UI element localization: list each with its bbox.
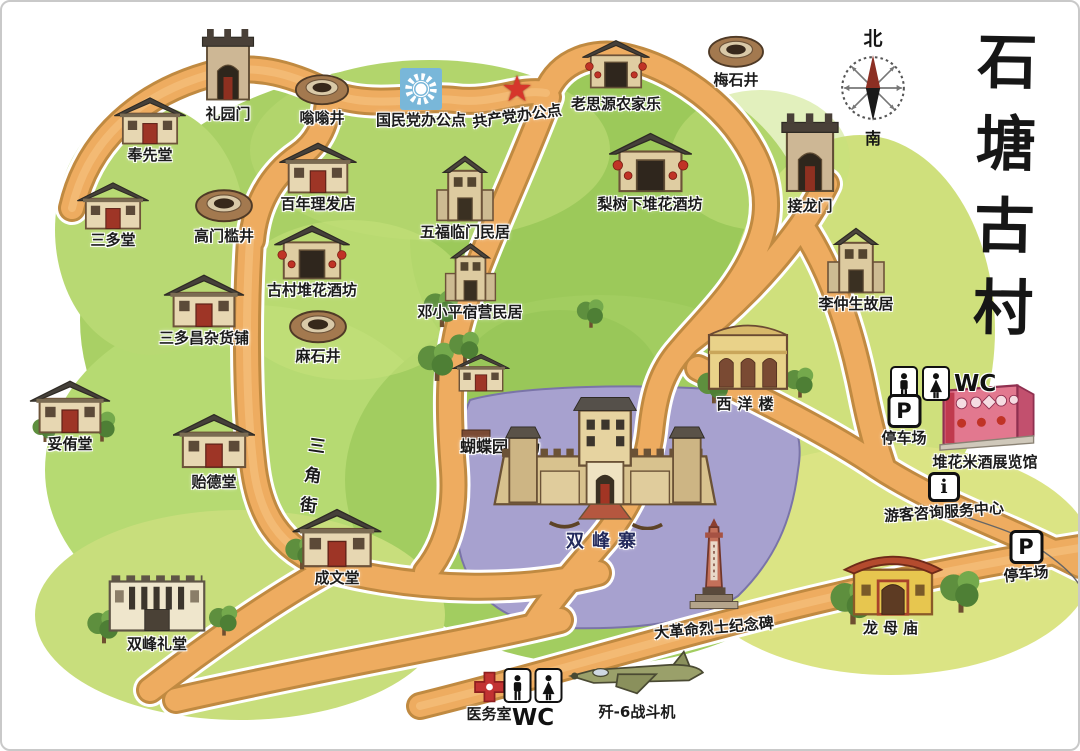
- temple-icon: [837, 540, 949, 618]
- landmark-label: 老思源农家乐: [571, 96, 661, 113]
- hall-icon: [27, 378, 113, 434]
- grocery-icon: [161, 272, 247, 328]
- well-icon: [193, 184, 255, 226]
- landmark-label: 奉先堂: [127, 147, 172, 164]
- landmark-label: 成文堂: [314, 570, 359, 587]
- gate-icon: [777, 110, 843, 196]
- landmark-label: 嗡嗡井: [299, 110, 344, 127]
- landmark-mashi-well[interactable]: 麻石井: [287, 306, 349, 365]
- landmark-martyrs-monument[interactable]: 大革命烈士纪念碑: [654, 516, 774, 637]
- landmark-label: 麻石井: [295, 348, 340, 365]
- well-icon: [293, 70, 351, 108]
- compass-north-label: 北: [863, 24, 882, 51]
- landmark-j6-fighter[interactable]: 歼-6战斗机: [562, 650, 712, 721]
- compass-rose-icon: [836, 51, 910, 125]
- landmark-label: 妥侑堂: [47, 436, 92, 453]
- info-icon: i: [928, 472, 960, 502]
- landmark-label: 双峰礼堂: [127, 636, 187, 653]
- landmark-label: 三多堂: [90, 232, 135, 249]
- fort-icon: [489, 392, 721, 530]
- landmark-label: 国民党办公点: [376, 112, 466, 129]
- parking-icon: P: [1009, 530, 1043, 564]
- kmt-sun-icon: [400, 68, 442, 110]
- compass: 北 南: [836, 24, 910, 149]
- landmark-label: 梨树下堆花酒坊: [597, 196, 702, 213]
- landmark-longmu-temple[interactable]: 龙母庙: [837, 540, 949, 637]
- red-star-icon: ★: [501, 74, 533, 106]
- parking-bottom-right[interactable]: P 停车场: [1003, 530, 1048, 583]
- hall-icon: [173, 408, 255, 472]
- landmark-laosiyuan-farmhouse[interactable]: 老思源农家乐: [571, 32, 661, 113]
- landmark-shuangfeng-auditorium[interactable]: 双峰礼堂: [97, 564, 217, 653]
- landmark-label: 古村堆花酒坊: [267, 282, 357, 299]
- landmark-label: 停车场: [1003, 564, 1049, 585]
- landmark-label: 接龙门: [787, 198, 832, 215]
- wc-label: WC: [954, 371, 996, 397]
- hall-icon: [113, 95, 187, 145]
- landmark-century-barbershop[interactable]: 百年理发店: [279, 140, 357, 213]
- well-icon: [287, 306, 349, 346]
- landmark-label: 贻德堂: [191, 474, 236, 491]
- landmark-lishuxia-wine-workshop[interactable]: 梨树下堆花酒坊: [597, 128, 702, 213]
- landmark-meishi-well[interactable]: 梅石井: [706, 32, 766, 89]
- landmark-label: 高门槛井: [194, 228, 254, 245]
- landmark-label: 礼园门: [205, 106, 250, 123]
- wc-facility-bottom[interactable]: WC: [504, 668, 563, 731]
- auditorium-icon: [97, 564, 217, 634]
- fighter-jet-icon: [562, 650, 712, 702]
- parking-icon: P: [887, 394, 921, 428]
- landmark-jielong-gate[interactable]: 接龙门: [777, 110, 843, 215]
- wc-label: WC: [512, 705, 554, 731]
- western-building-icon: [699, 316, 797, 394]
- wine-workshop-icon: [272, 222, 352, 280]
- landmark-label: 西洋楼: [716, 396, 779, 413]
- landmark-gaomenkan-well[interactable]: 高门槛井: [193, 184, 255, 245]
- residence-icon: [429, 150, 501, 222]
- landmark-label: 双峰寨: [566, 532, 644, 552]
- shop-icon: [279, 140, 357, 194]
- man-icon: [504, 668, 532, 703]
- landmark-sanduo-hall[interactable]: 三多堂: [77, 180, 149, 249]
- woman-icon: [535, 668, 563, 703]
- landmark-label: 歼-6战斗机: [599, 704, 676, 721]
- farmhouse-icon: [581, 32, 651, 94]
- landmark-wengweng-well[interactable]: 嗡嗡井: [293, 70, 351, 127]
- landmark-label: 邓小平宿营民居: [417, 304, 522, 321]
- wine-workshop-icon: [607, 128, 693, 194]
- page-title: 石塘古村: [954, 29, 1047, 358]
- residence-icon: [816, 222, 896, 294]
- residence-icon: [423, 238, 517, 302]
- compass-south-label: 南: [865, 125, 881, 149]
- landmark-label: 李仲生故居: [818, 296, 893, 313]
- landmark-liyuan-gate[interactable]: 礼园门: [198, 26, 258, 123]
- landmark-dengxiaoping-residence[interactable]: 邓小平宿营民居: [417, 238, 522, 321]
- monument-icon: [683, 516, 745, 618]
- landmark-label: 停车场: [881, 430, 926, 447]
- village-map: 奉先堂 礼园门 嗡嗡井 国民党办公点 ★共产党办公点 老思源农家乐 梅石井 接龙…: [0, 0, 1080, 751]
- landmark-sanduochang-grocery[interactable]: 三多昌杂货铺: [159, 272, 249, 347]
- landmark-label: 梅石井: [713, 72, 758, 89]
- hall-icon: [77, 180, 149, 230]
- landmark-label: 堆花米酒展览馆: [932, 454, 1037, 471]
- landmark-cpc-office[interactable]: ★共产党办公点: [472, 74, 562, 125]
- gate-icon: [198, 26, 258, 104]
- parking-right[interactable]: P 停车场: [881, 394, 926, 447]
- landmark-label: 三多昌杂货铺: [159, 330, 249, 347]
- landmark-yide-hall[interactable]: 贻德堂: [173, 408, 255, 491]
- landmark-label: 百年理发店: [280, 196, 355, 213]
- landmark-village-wine-workshop[interactable]: 古村堆花酒坊: [267, 222, 357, 299]
- landmark-tuoyou-hall[interactable]: 妥侑堂: [27, 378, 113, 453]
- landmark-kmt-office[interactable]: 国民党办公点: [376, 68, 466, 129]
- landmark-fengxian-hall[interactable]: 奉先堂: [113, 95, 187, 164]
- well-icon: [706, 32, 766, 70]
- landmark-tourist-info-center[interactable]: i游客咨询服务中心: [884, 472, 1004, 521]
- landmark-wufulinmen-residence[interactable]: 五福临门民居: [420, 150, 510, 241]
- medical-cross-icon: [472, 670, 506, 704]
- landmark-lizhongsheng-residence[interactable]: 李仲生故居: [816, 222, 896, 313]
- landmark-label: 龙母庙: [863, 620, 923, 637]
